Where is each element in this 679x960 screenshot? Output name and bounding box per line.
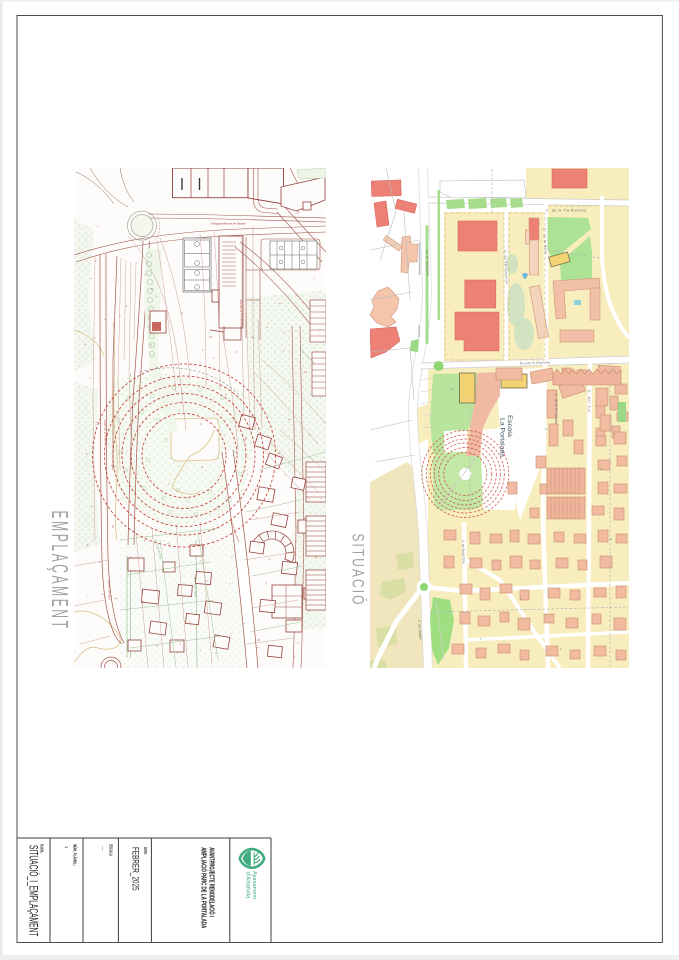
svg-text:Carrer dels Vents: Carrer dels Vents xyxy=(193,575,198,598)
svg-text:d'Altafulla: d'Altafulla xyxy=(245,872,251,900)
svg-text:AMPLIACIÓ PARC DE LA PORTALADA: AMPLIACIÓ PARC DE LA PORTALADA xyxy=(199,847,208,928)
svg-text:EMPLAÇAMENT: EMPLAÇAMENT xyxy=(47,511,73,631)
svg-text:Ajuntament: Ajuntament xyxy=(251,871,257,899)
svg-text:ESCALA: ESCALA xyxy=(107,844,113,856)
svg-text:AVANTPROJECTE REMODELACIÓ I: AVANTPROJECTE REMODELACIÓ I xyxy=(207,847,216,917)
svg-text:FEBRER_2025: FEBRER_2025 xyxy=(130,847,140,891)
svg-text:---: --- xyxy=(99,846,104,851)
svg-text:Avinguda Marques de Tamarit: Avinguda Marques de Tamarit xyxy=(211,222,245,226)
svg-text:Carrer del Mar: Carrer del Mar xyxy=(107,580,112,600)
svg-text:Escola: Escola xyxy=(506,415,513,437)
svg-text:1: 1 xyxy=(63,846,69,849)
svg-text:La Portalada: La Portalada xyxy=(499,418,506,457)
svg-text:C. del Sol: C. del Sol xyxy=(587,390,591,412)
svg-text:C. de la Via Romana: C. de la Via Romana xyxy=(546,209,586,213)
svg-text:SITUACIÓ_I_EMPLAÇAMENT: SITUACIÓ_I_EMPLAÇAMENT xyxy=(27,845,40,937)
svg-text:NÚM. PLÀNOL:: NÚM. PLÀNOL: xyxy=(72,844,79,866)
svg-text:Cami de la Rasa: Cami de la Rasa xyxy=(103,420,108,443)
svg-text:SITUACIÓ: SITUACIÓ xyxy=(349,534,368,607)
svg-text:DATA:: DATA: xyxy=(142,847,148,855)
svg-text:C. de la Portalada: C. de la Portalada xyxy=(554,394,558,424)
svg-text:C. de Santa Creu: C. de Santa Creu xyxy=(461,540,466,564)
